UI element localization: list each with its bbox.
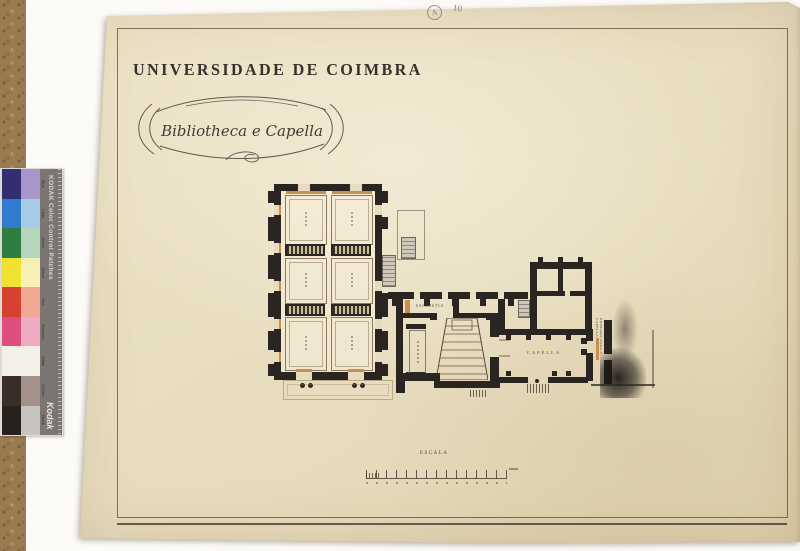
wall-segment	[453, 299, 459, 318]
kodak-patch-label: Green	[40, 228, 47, 258]
kodak-patch-rows	[2, 169, 40, 435]
cartouche-text: Bibliotheca e Capella	[160, 122, 323, 140]
pilaster	[268, 255, 275, 267]
shelf-band	[285, 304, 325, 316]
kodak-patch-row	[2, 228, 40, 258]
pilaster	[381, 293, 388, 305]
ochre-lining	[279, 352, 281, 362]
pilaster	[268, 293, 275, 305]
wall-segment	[396, 373, 440, 381]
wall-segment	[499, 329, 588, 335]
kodak-strip-title: KODAK Color Control Patches	[47, 175, 54, 280]
wall-stub	[538, 257, 543, 262]
pilaster	[268, 217, 275, 229]
pencil-number: 10	[452, 2, 463, 13]
bookcase-alcove	[285, 317, 327, 371]
border-frame-heavy-line	[117, 523, 787, 525]
entrance-steps	[527, 384, 551, 393]
scale-end-mark	[509, 468, 518, 470]
kodak-patch-row	[2, 287, 40, 317]
wall-stub	[578, 257, 583, 262]
kodak-patch-row	[2, 346, 40, 376]
drawing-title: UNIVERSIDADE DE COIMBRA	[133, 60, 423, 80]
kodak-patch-tint	[21, 346, 40, 376]
wall-segment	[396, 381, 405, 393]
kodak-patch-red	[2, 287, 21, 317]
kodak-patch-row	[2, 169, 40, 199]
wall-segment	[274, 184, 382, 191]
small-staircase	[518, 300, 530, 318]
room-label-capella: CAPELLA	[512, 350, 576, 355]
kodak-patch-tint	[21, 406, 40, 436]
kodak-patch-tint	[21, 228, 40, 258]
wall-segment	[476, 292, 498, 299]
wall-segment	[420, 292, 442, 299]
bookcase-alcove	[331, 258, 373, 304]
window-opening	[375, 281, 382, 291]
pilaster	[268, 191, 275, 203]
window-opening	[375, 205, 382, 215]
kodak-patch-tint	[21, 258, 40, 288]
kodak-patch-label: Cyan	[40, 199, 47, 229]
pencil-circled-letter: A	[426, 4, 443, 21]
kodak-patch-labels: BlueCyanGreenYellowRedMagentaWhite3/Colo…	[40, 169, 47, 435]
kodak-patch-label: Yellow	[40, 258, 47, 288]
wall-stub	[506, 371, 511, 376]
pilaster	[381, 305, 388, 317]
kodak-patch-magenta	[2, 317, 21, 347]
wall-stub	[480, 299, 486, 306]
wall-segment	[504, 292, 528, 299]
side-staircase	[382, 255, 396, 287]
column-dot	[535, 379, 539, 383]
kodak-patch-tint	[21, 169, 40, 199]
ochre-lining	[332, 191, 372, 194]
wall-segment	[396, 299, 403, 381]
scale-ruler-subdivisions	[366, 473, 380, 478]
pilaster	[381, 364, 388, 376]
wall-segment	[586, 353, 593, 381]
pilaster	[581, 338, 587, 344]
room-label-sacristia: SACRISTIA	[408, 304, 452, 308]
ochre-lining	[279, 243, 281, 253]
wall-segment	[498, 299, 505, 329]
kodak-patch-label: Blue	[40, 169, 47, 199]
wall-segment	[585, 262, 592, 329]
door-opening	[350, 184, 362, 191]
kodak-patch-tint	[21, 317, 40, 347]
wall-stub	[552, 371, 557, 376]
wall-segment	[530, 262, 537, 292]
wall-segment	[530, 262, 592, 269]
kodak-patch-label: 3/Color	[40, 376, 47, 406]
bookcase-alcove	[331, 195, 373, 245]
wall-segment	[548, 377, 588, 383]
shelf-band	[331, 244, 371, 256]
wall-segment	[499, 377, 528, 383]
scale-label: ESCALA	[420, 451, 448, 456]
kodak-patch-row	[2, 317, 40, 347]
door-opening	[296, 372, 312, 380]
kodak-patch-row	[2, 199, 40, 229]
annex-staircase	[401, 237, 416, 259]
scanned-document: A 10 UNIVERSIDADE DE COIMBRA Bibliotheca…	[0, 0, 800, 551]
kodak-patch-label: Magenta	[40, 317, 47, 347]
pilaster	[268, 229, 275, 241]
window-opening	[375, 319, 382, 329]
pilaster	[268, 364, 275, 376]
wall-segment	[448, 292, 470, 299]
ochre-lining	[279, 205, 281, 215]
kodak-patch-yellow	[2, 258, 21, 288]
shelf-band	[331, 304, 371, 316]
scale-numerals	[366, 482, 507, 484]
wall-segment	[406, 324, 426, 329]
wall-stub	[558, 257, 563, 262]
wall-stub	[566, 371, 571, 376]
kodak-patch-tint	[21, 199, 40, 229]
wall-stub	[566, 335, 571, 340]
pilaster	[268, 305, 275, 317]
door-opening	[298, 184, 310, 191]
kodak-patch-cyan	[2, 199, 21, 229]
wall-segment	[434, 381, 500, 388]
wall-stub	[526, 335, 531, 340]
ochre-lining	[296, 369, 312, 372]
kodak-patch-black	[2, 406, 21, 436]
window-opening	[375, 352, 382, 362]
wall-segment	[558, 269, 563, 291]
kodak-patch-3-color	[2, 376, 21, 406]
ink-smudge	[612, 298, 638, 360]
kodak-patch-label: White	[40, 346, 47, 376]
bookcase-alcove	[285, 195, 327, 245]
wall-segment	[388, 292, 414, 299]
kodak-patch-row	[2, 376, 40, 406]
wall-stub	[508, 299, 514, 306]
wall-segment	[490, 357, 499, 381]
door-leaf	[499, 355, 510, 357]
pilaster	[268, 338, 275, 350]
side-room-outline	[409, 330, 426, 374]
ochre-lining	[279, 319, 281, 329]
kodak-brand-logo: Kodak	[45, 402, 55, 430]
kodak-patch-row	[2, 406, 40, 436]
wall-segment	[586, 329, 593, 341]
shelf-band	[285, 244, 325, 256]
pilaster	[381, 191, 388, 203]
ochre-lining	[286, 191, 326, 194]
kodak-patch-tint	[21, 287, 40, 317]
wall-line	[591, 384, 655, 386]
portico-outline	[283, 380, 393, 400]
ochre-lining	[348, 369, 364, 372]
wall-segment	[490, 313, 499, 337]
entrance-steps	[470, 390, 488, 397]
grand-staircase	[436, 318, 488, 380]
pilaster	[581, 349, 587, 355]
kodak-patch-white	[2, 346, 21, 376]
pilaster	[381, 338, 388, 350]
bookcase-alcove	[331, 317, 373, 371]
kodak-patch-green	[2, 228, 21, 258]
pencil-line	[652, 330, 654, 388]
kodak-color-strip: BlueCyanGreenYellowRedMagentaWhite3/Colo…	[0, 168, 63, 436]
door-opening	[348, 372, 364, 380]
wall-stub	[506, 335, 511, 340]
wall-segment	[537, 291, 565, 296]
kodak-gray-bar: BlueCyanGreenYellowRedMagentaWhite3/Colo…	[40, 169, 62, 435]
wall-segment	[570, 291, 585, 296]
kodak-patch-label: Red	[40, 287, 47, 317]
pilaster	[268, 267, 275, 279]
kodak-patch-tint	[21, 376, 40, 406]
bookcase-alcove	[285, 258, 327, 304]
small-flourish	[224, 148, 264, 166]
ochre-lining	[279, 281, 281, 291]
wall-segment	[274, 372, 382, 380]
kodak-patch-blue	[2, 169, 21, 199]
wall-stub	[546, 335, 551, 340]
pilaster	[381, 217, 388, 229]
scale-ruler	[366, 470, 507, 479]
wall-segment	[530, 292, 537, 329]
drawing-content: A 10 UNIVERSIDADE DE COIMBRA Bibliotheca…	[0, 0, 800, 551]
kodak-patch-row	[2, 258, 40, 288]
